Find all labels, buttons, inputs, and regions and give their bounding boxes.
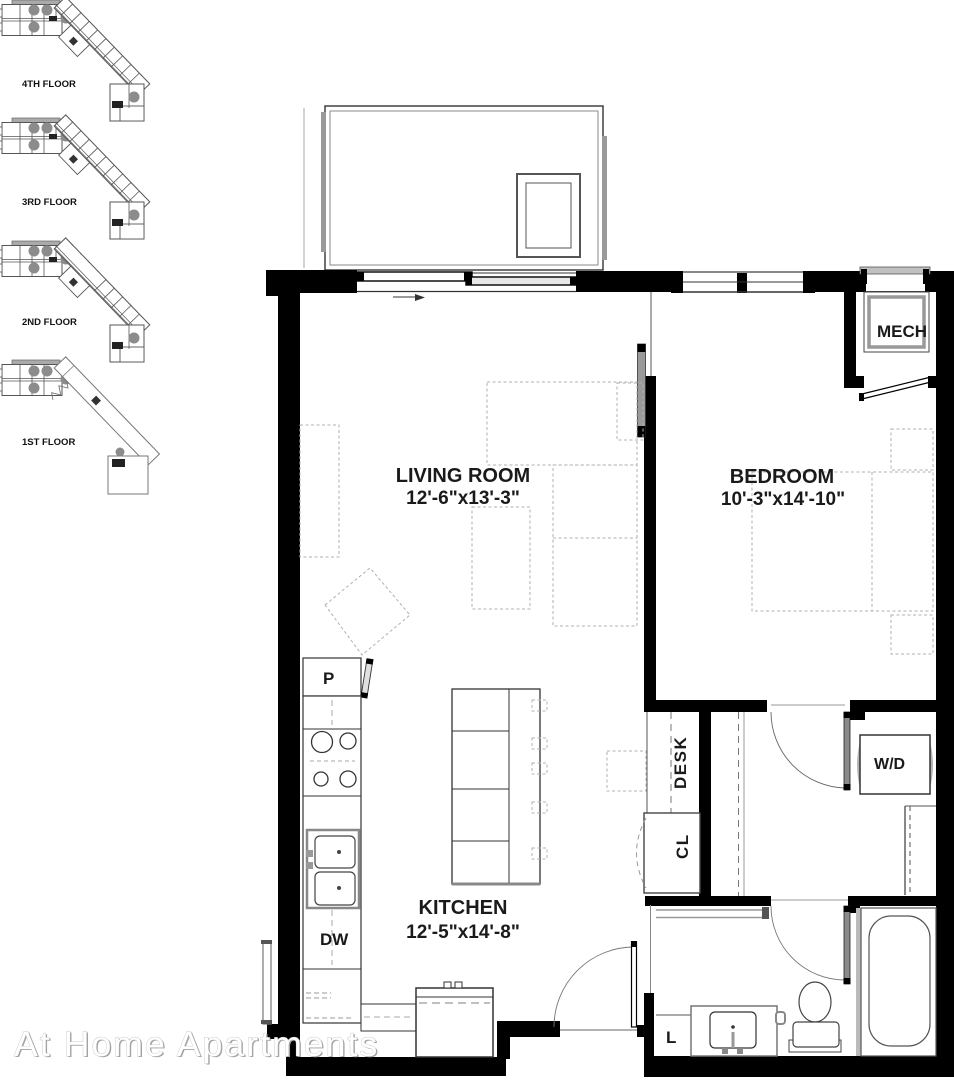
svg-text:KITCHEN: KITCHEN bbox=[419, 897, 508, 919]
svg-text:At Home Apartments: At Home Apartments bbox=[14, 1024, 379, 1064]
svg-text:L: L bbox=[666, 1028, 676, 1047]
svg-text:10'-3"x14'-10": 10'-3"x14'-10" bbox=[721, 489, 845, 510]
svg-text:4TH FLOOR: 4TH FLOOR bbox=[22, 79, 76, 90]
svg-text:12'-5"x14'-8": 12'-5"x14'-8" bbox=[406, 922, 520, 943]
svg-text:1ST FLOOR: 1ST FLOOR bbox=[22, 437, 75, 448]
svg-text:CL: CL bbox=[673, 833, 692, 859]
svg-text:P: P bbox=[323, 669, 334, 688]
svg-text:3RD FLOOR: 3RD FLOOR bbox=[22, 197, 77, 208]
svg-text:BEDROOM: BEDROOM bbox=[730, 466, 834, 488]
svg-text:12'-6"x13'-3": 12'-6"x13'-3" bbox=[406, 488, 520, 509]
svg-text:MECH: MECH bbox=[877, 322, 927, 341]
svg-text:W/D: W/D bbox=[874, 756, 905, 773]
svg-text:DW: DW bbox=[320, 930, 349, 949]
svg-text:DESK: DESK bbox=[671, 736, 690, 789]
svg-text:2ND FLOOR: 2ND FLOOR bbox=[22, 317, 77, 328]
svg-text:LIVING ROOM: LIVING ROOM bbox=[396, 465, 530, 487]
